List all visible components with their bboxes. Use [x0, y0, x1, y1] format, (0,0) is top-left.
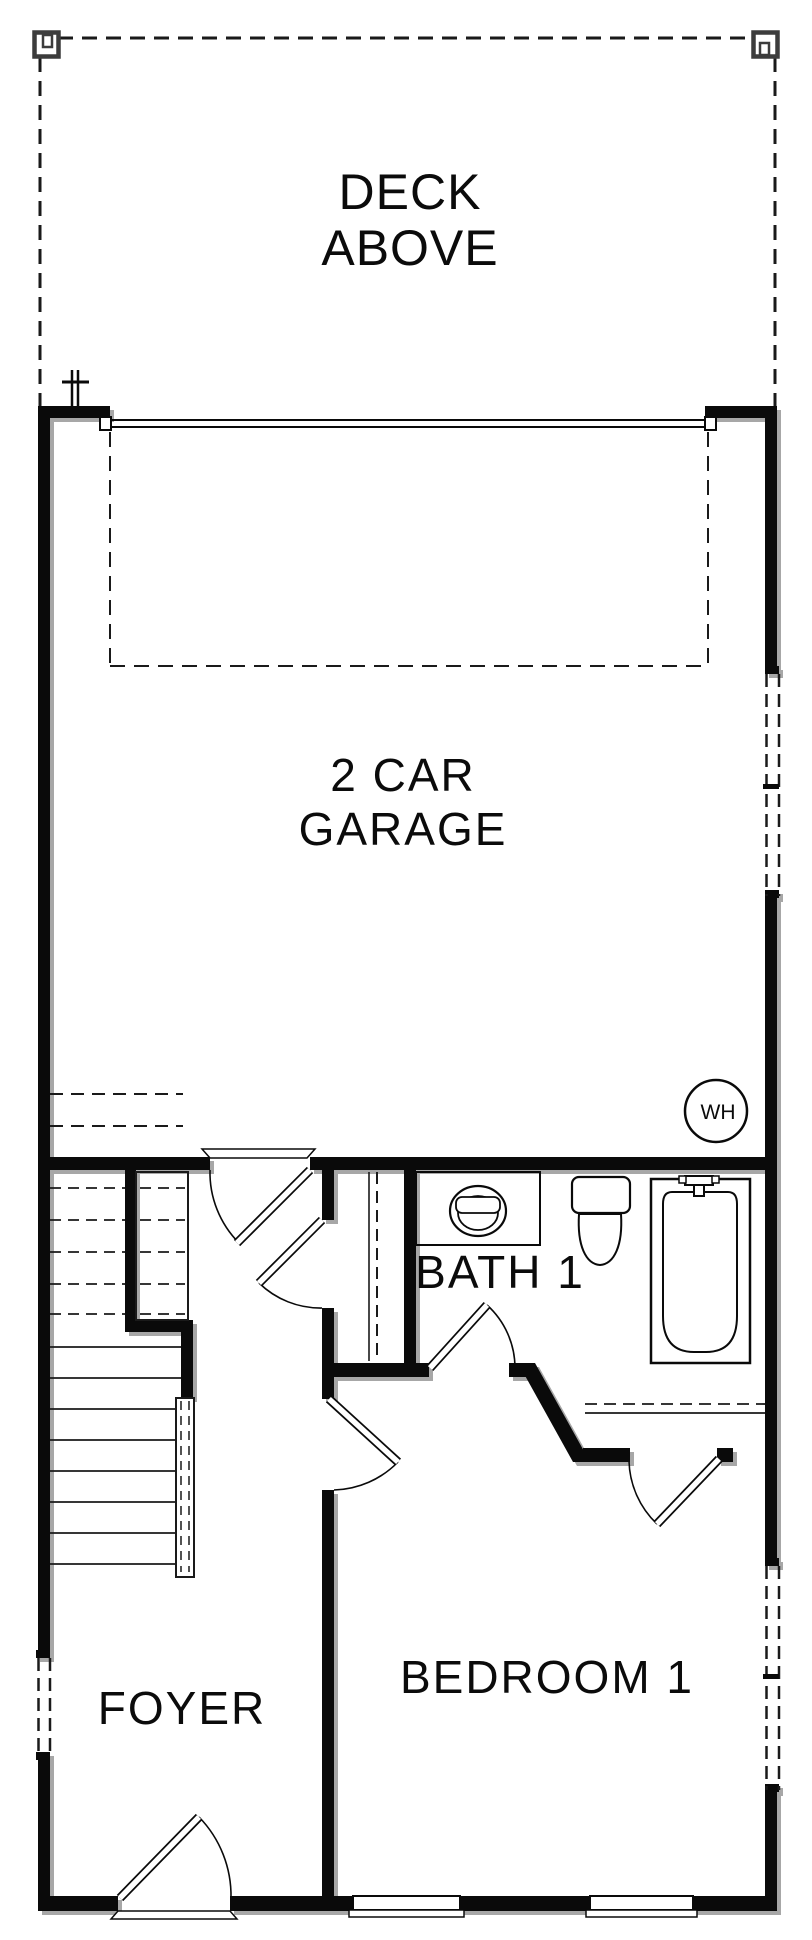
wall-right-2	[765, 898, 777, 1565]
wall-diagonal	[518, 1363, 590, 1462]
stair-treads-solid	[50, 1347, 181, 1564]
window-front-right	[586, 1896, 697, 1917]
wall-hall-3	[322, 1490, 334, 1911]
garage-door-jamb-right	[705, 417, 716, 430]
bedroom-label: BEDROOM 1	[400, 1651, 694, 1703]
wall-bottom-1	[38, 1896, 118, 1911]
wall-bottom-2	[230, 1896, 353, 1911]
front-door-sill	[111, 1911, 237, 1919]
window-front-left	[349, 1896, 464, 1917]
hall-closet-lines	[369, 1172, 377, 1361]
stair-treads-dashed-upper	[50, 1094, 183, 1126]
water-heater-symbol: WH	[685, 1080, 747, 1142]
wall-hall-2	[322, 1308, 334, 1399]
door-garage-entry	[202, 1149, 315, 1243]
window-tick-bedroom	[763, 1674, 779, 1679]
window-tick-garage	[763, 784, 779, 789]
wall-bottom-3	[460, 1896, 590, 1911]
sink	[416, 1172, 540, 1245]
garage-door-jamb-left	[100, 417, 111, 430]
stair-upper-run-outline	[136, 1172, 188, 1320]
wall-stair-v	[181, 1332, 193, 1398]
wall-garage-bottom-left	[38, 1157, 210, 1170]
wall-left-upper	[38, 406, 50, 1658]
wall-garage-bottom-right	[310, 1157, 777, 1170]
floor-plan-page: WH	[0, 0, 812, 1940]
door-threshold-garage	[202, 1149, 315, 1158]
corner-post-right	[754, 33, 778, 57]
wall-hall-1	[322, 1170, 334, 1220]
foyer-label: FOYER	[98, 1682, 266, 1734]
water-heater-label: WH	[701, 1101, 736, 1124]
stair-treads-dashed	[50, 1188, 185, 1314]
hose-bib-icon	[62, 370, 89, 406]
wall-bottom-4	[693, 1896, 777, 1911]
wall-stair-l	[125, 1320, 193, 1332]
garage-label-line1: 2 CAR	[330, 749, 475, 801]
door-bedroom-closet	[629, 1459, 719, 1524]
wall-closet-bottom	[583, 1448, 630, 1462]
wall-right-1	[765, 406, 777, 673]
door-front-entry	[111, 1817, 237, 1919]
door-bedroom	[329, 1399, 398, 1490]
bath-label: BATH 1	[415, 1246, 585, 1298]
wall-stair-mid	[125, 1170, 136, 1320]
foyer-side-window	[39, 1658, 51, 1758]
garage-door-track	[110, 432, 708, 666]
deck-label-line1: DECK	[339, 164, 482, 220]
bedroom-closet-shelf	[585, 1404, 765, 1413]
bathtub	[651, 1176, 750, 1363]
wall-left-lower	[38, 1760, 50, 1911]
floor-plan-drawing: WH	[0, 0, 812, 1940]
wall-right-3	[765, 1792, 777, 1911]
garage-label-line2: GARAGE	[299, 803, 508, 855]
garage-door	[100, 417, 716, 430]
stair-railing	[176, 1398, 194, 1577]
wall-bath-bottom-left	[322, 1363, 429, 1377]
deck-label-line2: ABOVE	[321, 220, 498, 276]
corner-post-left	[35, 33, 59, 57]
door-bath	[430, 1305, 515, 1368]
door-hall-closet	[259, 1220, 322, 1308]
